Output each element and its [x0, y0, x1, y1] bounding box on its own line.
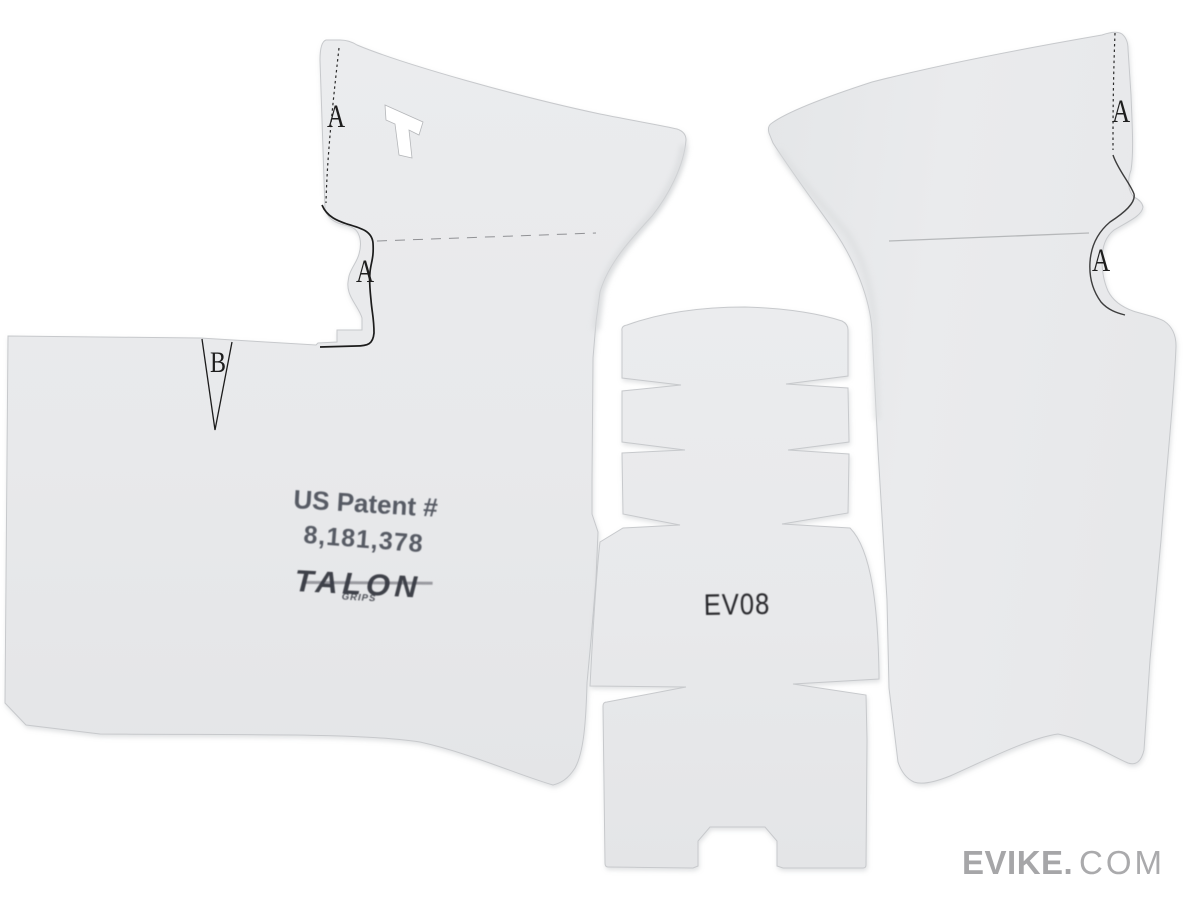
svg-text:A: A — [1112, 94, 1130, 130]
svg-text:GRIPS: GRIPS — [341, 592, 376, 605]
svg-text:A: A — [1092, 243, 1110, 279]
svg-text:EVIKE.: EVIKE. — [962, 844, 1073, 881]
svg-text:A: A — [356, 254, 374, 290]
svg-text:B: B — [210, 345, 226, 378]
svg-text:A: A — [327, 99, 345, 135]
svg-text:EV08: EV08 — [704, 587, 771, 622]
svg-text:COM: COM — [1079, 844, 1165, 881]
